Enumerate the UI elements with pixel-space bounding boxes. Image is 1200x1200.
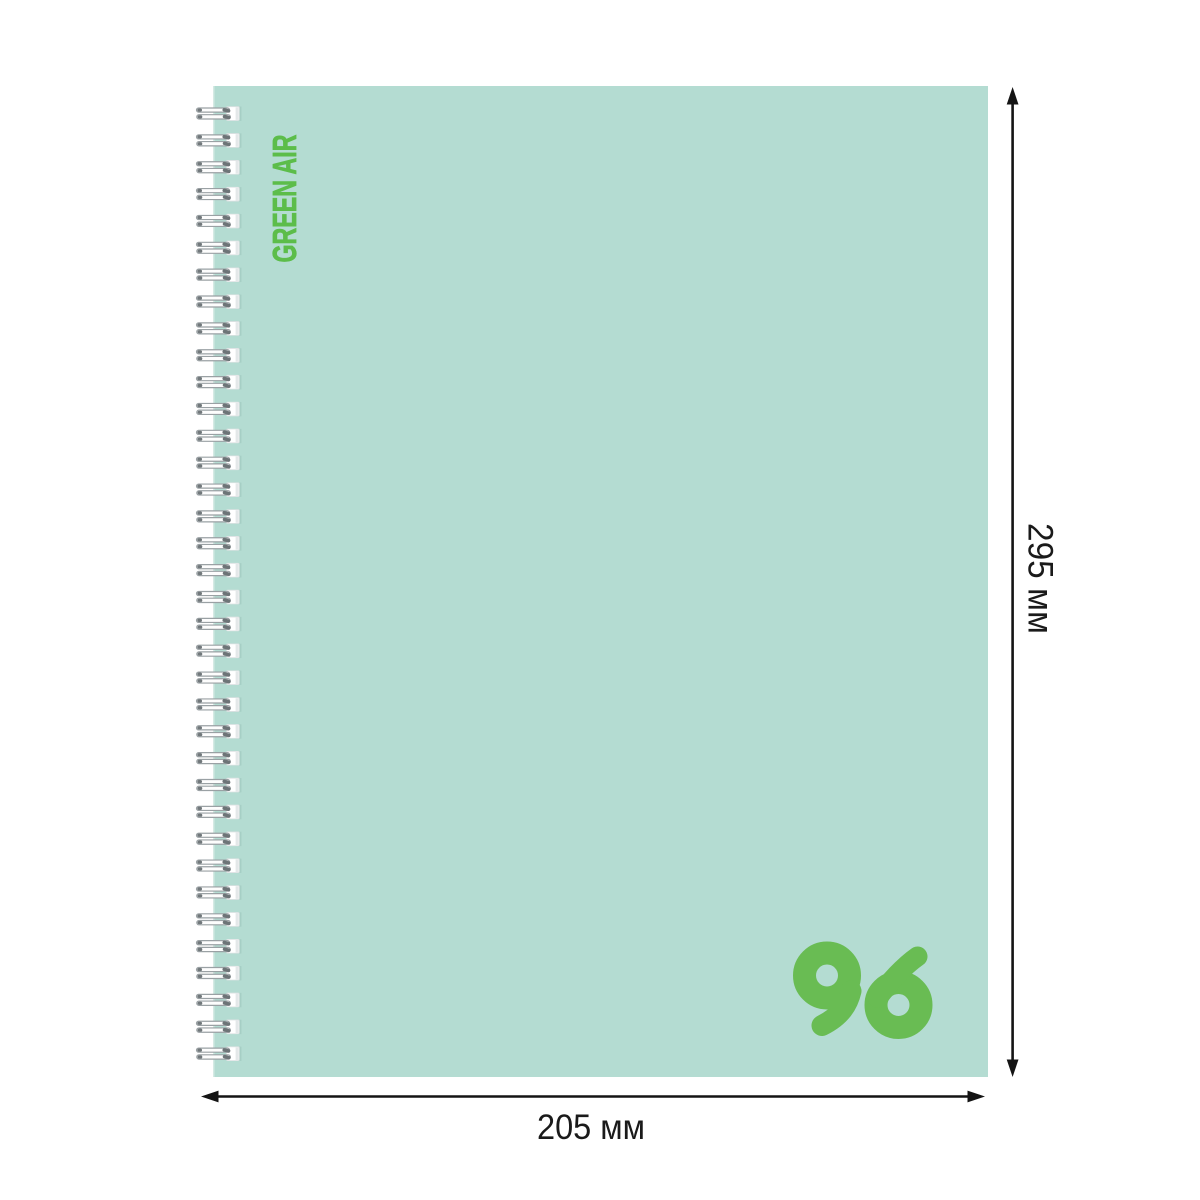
svg-text:205 мм: 205 мм xyxy=(537,1108,645,1147)
svg-text:GREEN AIR: GREEN AIR xyxy=(267,135,304,263)
svg-text:295 мм: 295 мм xyxy=(1021,523,1060,634)
